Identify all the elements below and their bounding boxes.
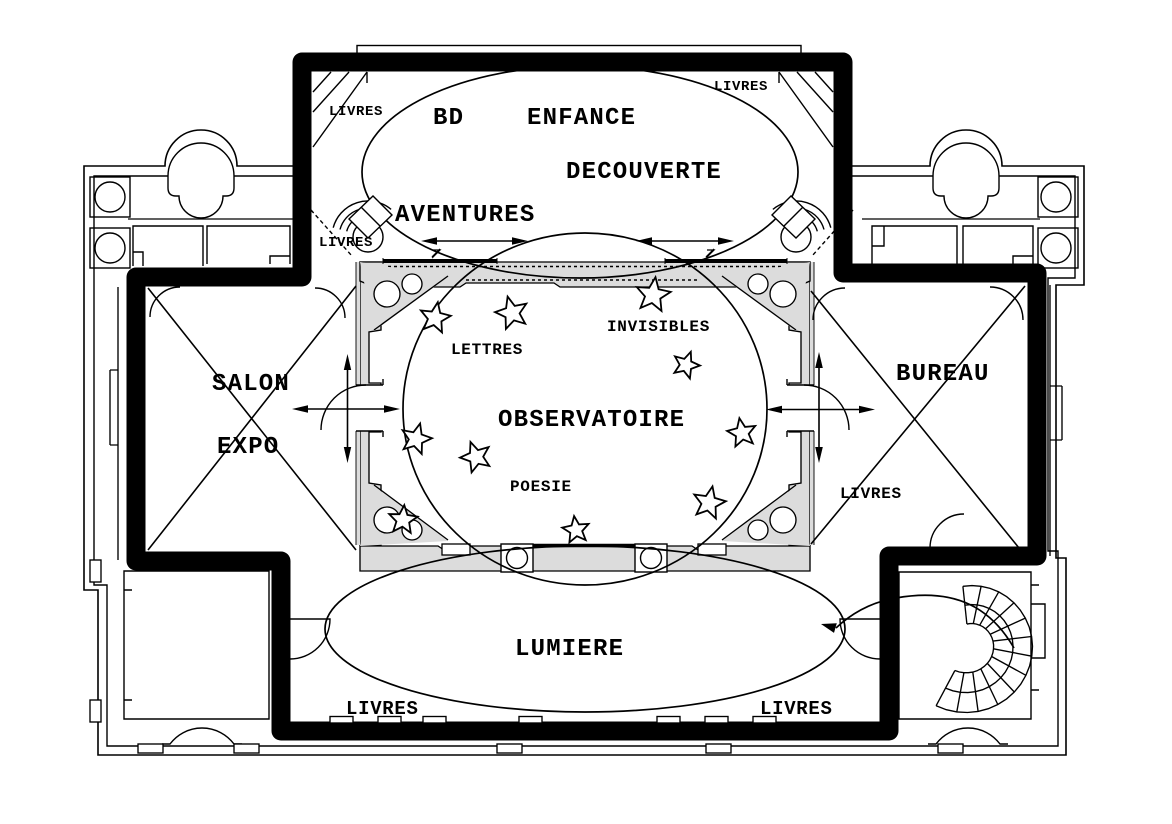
svg-text:LIVRES: LIVRES [319, 235, 373, 251]
svg-text:OBSERVATOIRE: OBSERVATOIRE [498, 407, 685, 434]
svg-text:AVENTURES: AVENTURES [395, 202, 535, 229]
svg-text:DECOUVERTE: DECOUVERTE [566, 159, 722, 186]
svg-text:POESIE: POESIE [510, 478, 572, 496]
svg-text:SALON: SALON [212, 371, 290, 398]
svg-text:LIVRES: LIVRES [840, 485, 902, 503]
svg-text:LETTRES: LETTRES [451, 341, 523, 359]
svg-text:LIVRES: LIVRES [760, 698, 833, 720]
svg-text:BD: BD [433, 105, 464, 132]
svg-text:LIVRES: LIVRES [329, 104, 383, 120]
svg-text:LUMIERE: LUMIERE [515, 636, 624, 663]
svg-text:INVISIBLES: INVISIBLES [607, 318, 710, 336]
svg-text:EXPO: EXPO [217, 434, 279, 461]
svg-text:ENFANCE: ENFANCE [527, 105, 636, 132]
svg-text:BUREAU: BUREAU [896, 361, 990, 388]
svg-text:LIVRES: LIVRES [714, 79, 768, 95]
svg-text:LIVRES: LIVRES [346, 698, 419, 720]
